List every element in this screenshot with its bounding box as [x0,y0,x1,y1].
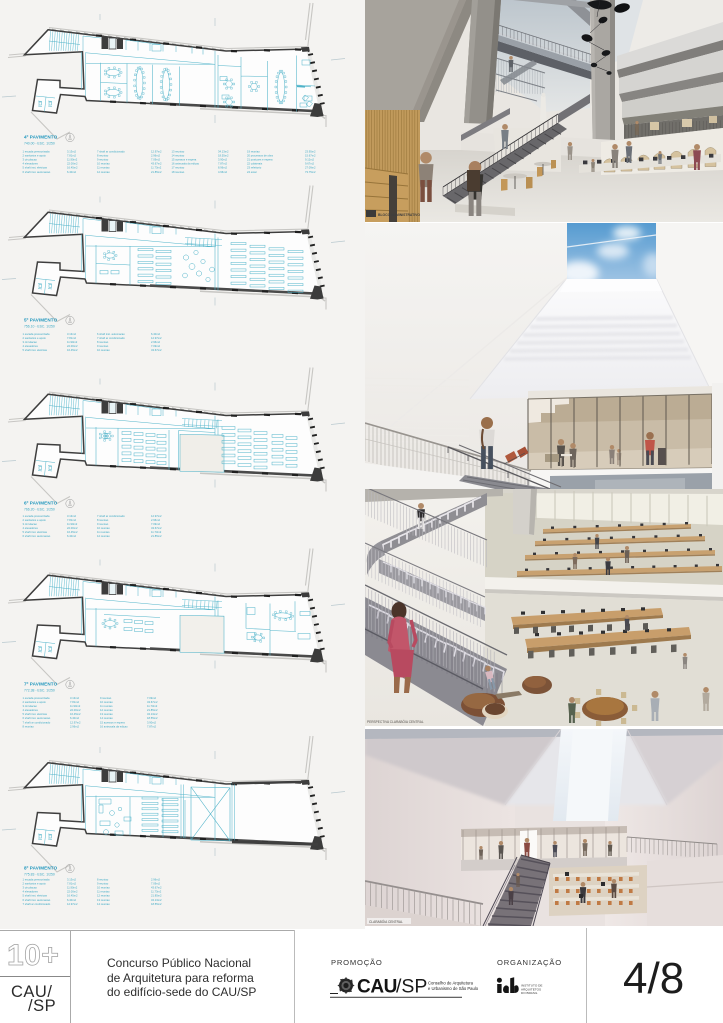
svg-text:2.96m2: 2.96m2 [151,340,160,344]
svg-text:16 antecsala da edicao: 16 antecsala da edicao [172,162,200,166]
svg-text:740.00 - ESC. 1/250: 740.00 - ESC. 1/250 [24,141,55,145]
svg-text:15 acessos e espera: 15 acessos e espera [100,720,125,724]
svg-text:7 shaft ar condicionado: 7 shaft ar condicionado [23,902,51,906]
svg-text:3.90m2: 3.90m2 [218,158,227,162]
svg-text:7.81m2: 7.81m2 [67,336,76,340]
svg-text:15.67m2: 15.67m2 [305,154,316,158]
svg-text:4 elevadores: 4 elevadores [23,162,39,166]
svg-text:16.45m2: 16.45m2 [67,894,78,898]
svg-text:22.00m2: 22.00m2 [67,162,78,166]
svg-text:11.73m2: 11.73m2 [151,530,162,534]
svg-text:11 reuniao: 11 reuniao [100,704,113,708]
svg-text:2.96m2: 2.96m2 [151,878,160,882]
svg-text:10 reuniao: 10 reuniao [97,886,110,890]
svg-text:4 elevadores: 4 elevadores [23,526,39,530]
svg-text:34.13m2: 34.13m2 [218,150,229,154]
svg-text:9 reuniao: 9 reuniao [97,522,109,526]
svg-text:34.13m2: 34.13m2 [151,898,162,902]
svg-text:21.85m2: 21.85m2 [147,708,158,712]
svg-text:7.81m2: 7.81m2 [70,700,79,704]
svg-text:10 reuniao: 10 reuniao [97,162,110,166]
svg-text:4.96m2: 4.96m2 [218,170,227,174]
svg-text:4 elevadores: 4 elevadores [23,708,39,712]
svg-text:8 reuniao: 8 reuniao [97,878,109,882]
svg-text:3 circulacao: 3 circulacao [23,158,38,162]
svg-text:DO BRASIL: DO BRASIL [521,991,538,995]
svg-text:12 reuniao: 12 reuniao [100,708,113,712]
svg-text:11.90m2: 11.90m2 [67,522,78,526]
svg-text:3 circulacao: 3 circulacao [23,340,38,344]
svg-text:13 reuniao: 13 reuniao [172,150,185,154]
svg-text:13 reuniao: 13 reuniao [97,898,110,902]
svg-text:11 reuniao: 11 reuniao [97,890,110,894]
svg-text:15 acessos e espera: 15 acessos e espera [172,158,197,162]
svg-text:8 reuniao: 8 reuniao [23,724,35,728]
svg-text:1 escada pressurizada: 1 escada pressurizada [23,878,51,882]
svg-text:/SP: /SP [396,976,427,998]
svg-text:11 reuniao: 11 reuniao [97,530,110,534]
svg-text:10 reuniao: 10 reuniao [97,526,110,530]
svg-text:12.97m2: 12.97m2 [67,902,78,906]
svg-text:12.97m2: 12.97m2 [151,336,162,340]
svg-text:1 escada pressurizada: 1 escada pressurizada [23,332,51,336]
svg-text:9 reuniao: 9 reuniao [97,344,109,348]
svg-text:12 reuniao: 12 reuniao [97,894,110,898]
svg-text:12.97m2: 12.97m2 [151,150,162,154]
svg-text:6º PAVIMENTO: 6º PAVIMENTO [24,501,58,506]
svg-text:43.67m2: 43.67m2 [151,526,162,530]
svg-text:10 reuniao: 10 reuniao [97,348,110,352]
svg-text:4 elevadores: 4 elevadores [23,344,39,348]
svg-text:1 escada pressurizada: 1 escada pressurizada [23,150,51,154]
svg-text:11.90m2: 11.90m2 [67,886,78,890]
svg-text:18.55m2: 18.55m2 [147,716,158,720]
svg-text:756.10 - ESC. 1/250: 756.10 - ESC. 1/250 [24,324,55,328]
svg-text:22.00m2: 22.00m2 [67,526,78,530]
svg-text:18 reuniao: 18 reuniao [172,170,185,174]
svg-text:12 reuniao: 12 reuniao [97,534,110,538]
svg-text:7.09m2: 7.09m2 [151,522,160,526]
svg-text:772.38 - ESC. 1/250: 772.38 - ESC. 1/250 [24,688,55,692]
svg-text:16.45m2: 16.45m2 [70,712,81,716]
svg-text:7.09m2: 7.09m2 [147,696,156,700]
svg-text:22.00m2: 22.00m2 [70,708,81,712]
svg-text:24 estar: 24 estar [247,170,257,174]
svg-text:19 reuniao: 19 reuniao [247,150,260,154]
svg-text:766.20 - ESC. 1/250: 766.20 - ESC. 1/250 [24,507,55,511]
svg-text:1 escada pressurizada: 1 escada pressurizada [23,696,51,700]
svg-text:11.90m2: 11.90m2 [67,158,78,162]
svg-text:9 reuniao: 9 reuniao [97,158,109,162]
svg-text:11.90m2: 11.90m2 [67,340,78,344]
svg-text:21.85m2: 21.85m2 [151,534,162,538]
svg-text:27.09m2: 27.09m2 [305,166,316,170]
svg-text:6 shaft inst. automacao: 6 shaft inst. automacao [23,898,51,902]
svg-text:3.13m2: 3.13m2 [67,514,76,518]
svg-text:7.81m2: 7.81m2 [67,882,76,886]
svg-text:6 shaft inst. automacao: 6 shaft inst. automacao [23,170,51,174]
svg-text:7 shaft ar condicionado: 7 shaft ar condicionado [97,336,125,340]
svg-text:21 posicoes e espera: 21 posicoes e espera [247,158,273,162]
svg-text:20 processos de obra: 20 processos de obra [247,154,273,158]
svg-text:3 circulacao: 3 circulacao [23,522,38,526]
svg-text:17 reuniao: 17 reuniao [172,166,185,170]
svg-text:6 shaft inst. automacao: 6 shaft inst. automacao [23,716,51,720]
svg-text:8º PAVIMENTO: 8º PAVIMENTO [24,866,58,871]
svg-text:6.40m2: 6.40m2 [67,170,76,174]
svg-text:7 shaft ar condicionado: 7 shaft ar condicionado [97,150,125,154]
svg-text:11.73m2: 11.73m2 [147,704,158,708]
svg-text:14 reuniao: 14 reuniao [97,902,110,906]
svg-text:16 antecsala da edicao: 16 antecsala da edicao [100,724,128,728]
svg-text:8.96m2: 8.96m2 [218,166,227,170]
svg-text:9.67m2: 9.67m2 [305,162,314,166]
svg-text:7.09m2: 7.09m2 [151,882,160,886]
svg-text:43.67m2: 43.67m2 [151,348,162,352]
svg-text:14 reuniao: 14 reuniao [172,154,185,158]
svg-text:3.13m2: 3.13m2 [70,696,79,700]
svg-text:3.13m2: 3.13m2 [67,150,76,154]
svg-text:9.12m2: 9.12m2 [305,158,314,162]
svg-text:6 shaft inst. automacao: 6 shaft inst. automacao [97,332,125,336]
svg-text:23.95m2: 23.95m2 [305,150,316,154]
svg-text:2 sanitarios e apoio: 2 sanitarios e apoio [23,518,47,522]
svg-text:12.97m2: 12.97m2 [70,720,81,724]
svg-text:7.81m2: 7.81m2 [67,518,76,522]
svg-text:3 circulacao: 3 circulacao [23,704,38,708]
svg-text:23 refeitorio: 23 refeitorio [247,166,262,170]
svg-text:7.81m2: 7.81m2 [67,154,76,158]
svg-text:6 shaft inst. automacao: 6 shaft inst. automacao [23,534,51,538]
svg-text:CAU: CAU [357,977,397,998]
svg-text:PERSPECTIVA CLARABÓIA CENTRAL: PERSPECTIVA CLARABÓIA CENTRAL [367,719,424,724]
svg-text:34.13m2: 34.13m2 [147,712,158,716]
svg-text:e Urbanismo de São Paulo: e Urbanismo de São Paulo [428,986,479,991]
svg-text:BLOCO ADMINISTRATIVO: BLOCO ADMINISTRATIVO [378,213,420,217]
svg-text:2 sanitarios e apoio: 2 sanitarios e apoio [23,336,47,340]
svg-text:16.45m2: 16.45m2 [67,166,78,170]
svg-text:5 shaft inst. eletricas: 5 shaft inst. eletricas [23,894,48,898]
svg-text:10 reuniao: 10 reuniao [100,700,113,704]
svg-text:11.90m2: 11.90m2 [70,704,81,708]
svg-text:7 shaft ar condicionado: 7 shaft ar condicionado [23,720,51,724]
svg-text:7.09m2: 7.09m2 [151,158,160,162]
svg-text:3.13m2: 3.13m2 [67,332,76,336]
svg-text:7º PAVIMENTO: 7º PAVIMENTO [24,682,58,687]
svg-text:1 escada pressurizada: 1 escada pressurizada [23,514,51,518]
svg-text:8 reuniao: 8 reuniao [97,340,109,344]
svg-text:14 reuniao: 14 reuniao [100,716,113,720]
svg-text:22.00m2: 22.00m2 [67,890,78,894]
svg-text:11.73m2: 11.73m2 [151,890,162,894]
svg-text:7.09m2: 7.09m2 [151,344,160,348]
svg-text:18.55m2: 18.55m2 [151,902,162,906]
svg-text:43.67m2: 43.67m2 [151,886,162,890]
svg-text:13 reuniao: 13 reuniao [100,712,113,716]
svg-text:2.96m2: 2.96m2 [70,724,79,728]
svg-text:12.97m2: 12.97m2 [151,514,162,518]
svg-text:6.40m2: 6.40m2 [67,898,76,902]
svg-text:6.40m2: 6.40m2 [151,332,160,336]
svg-text:16.45m2: 16.45m2 [67,530,78,534]
svg-text:4º PAVIMENTO: 4º PAVIMENTO [24,135,58,140]
svg-text:4 elevadores: 4 elevadores [23,890,39,894]
svg-text:22 colaterais: 22 colaterais [247,162,263,166]
svg-text:7.87m2: 7.87m2 [147,724,156,728]
svg-text:7.87m2: 7.87m2 [218,162,227,166]
svg-text:10+: 10+ [7,939,59,972]
svg-text:12 reuniao: 12 reuniao [97,170,110,174]
svg-text:22.00m2: 22.00m2 [67,344,78,348]
svg-text:9 reuniao: 9 reuniao [100,696,112,700]
svg-text:21.85m2: 21.85m2 [151,170,162,174]
svg-text:6.40m2: 6.40m2 [70,716,79,720]
svg-text:3 circulacao: 3 circulacao [23,886,38,890]
svg-text:7 shaft ar condicionado: 7 shaft ar condicionado [97,514,125,518]
svg-text:Conselho de Arquitetura: Conselho de Arquitetura [428,981,474,986]
svg-text:6.40m2: 6.40m2 [67,534,76,538]
svg-text:18.55m2: 18.55m2 [218,154,229,158]
svg-text:5 shaft inst. eletricas: 5 shaft inst. eletricas [23,712,48,716]
svg-text:73.75m2: 73.75m2 [305,170,316,174]
svg-text:21.85m2: 21.85m2 [151,894,162,898]
svg-text:3.13m2: 3.13m2 [67,878,76,882]
svg-text:11.73m2: 11.73m2 [151,166,162,170]
svg-text:2 sanitarios e apoio: 2 sanitarios e apoio [23,154,47,158]
svg-text:3.90m2: 3.90m2 [147,720,156,724]
svg-text:5 shaft inst. eletricas: 5 shaft inst. eletricas [23,166,48,170]
svg-text:CLARABÓIA CENTRAL: CLARABÓIA CENTRAL [369,919,403,924]
svg-text:775.83 - ESC. 1/250: 775.83 - ESC. 1/250 [24,872,55,876]
svg-text:5 shaft inst. eletricas: 5 shaft inst. eletricas [23,348,48,352]
svg-text:8 reuniao: 8 reuniao [97,154,109,158]
svg-text:2 sanitarios e apoio: 2 sanitarios e apoio [23,882,47,886]
svg-text:16.45m2: 16.45m2 [67,348,78,352]
svg-text:9 reuniao: 9 reuniao [97,882,109,886]
svg-text:2 sanitarios e apoio: 2 sanitarios e apoio [23,700,47,704]
svg-text:43.67m2: 43.67m2 [151,162,162,166]
svg-text:2.96m2: 2.96m2 [151,154,160,158]
svg-text:8 reuniao: 8 reuniao [97,518,109,522]
svg-text:43.67m2: 43.67m2 [147,700,158,704]
svg-text:11 reuniao: 11 reuniao [97,166,110,170]
svg-text:5 shaft inst. eletricas: 5 shaft inst. eletricas [23,530,48,534]
svg-text:5º PAVIMENTO: 5º PAVIMENTO [24,318,58,323]
svg-text:2.96m2: 2.96m2 [151,518,160,522]
